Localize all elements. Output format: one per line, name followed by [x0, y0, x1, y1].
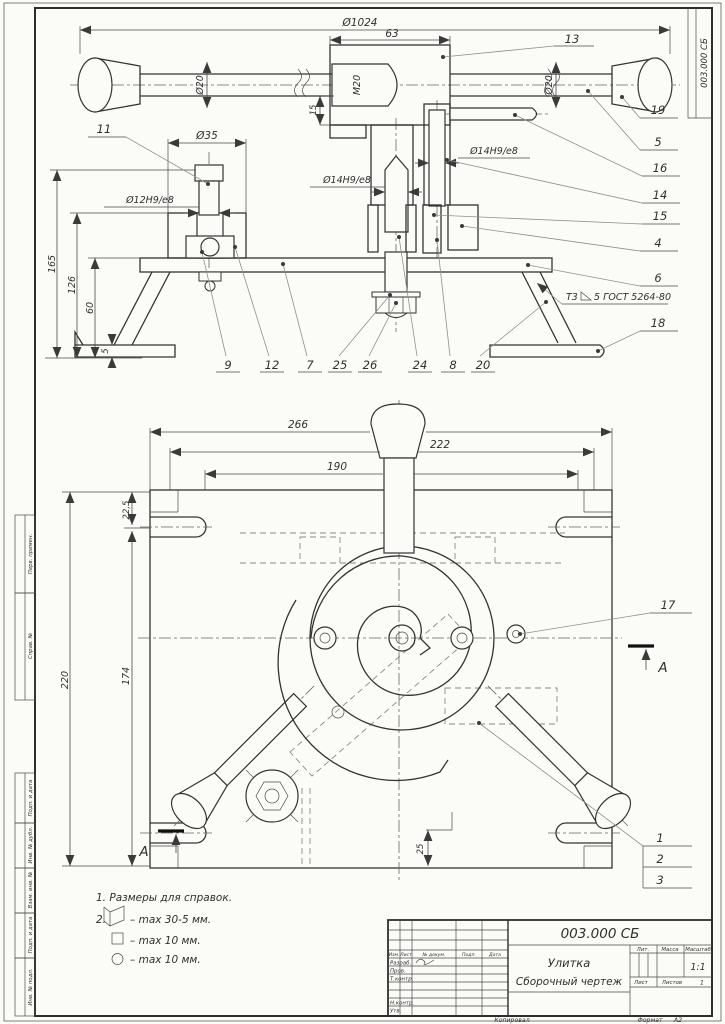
callout-26: 26 [363, 358, 378, 372]
tb-format-value: А2 [673, 1017, 682, 1024]
dim-25: 25 [416, 844, 426, 855]
tb-row-razrab: Разраб. [390, 961, 411, 967]
callout-12: 12 [265, 358, 280, 372]
dim-174: 174 [121, 667, 132, 685]
tb-massa-label: Масса [661, 947, 678, 953]
locating-pin [450, 108, 537, 120]
dim-222: 222 [430, 439, 450, 451]
stamp-label: Справ. № [28, 632, 34, 659]
callout-11: 11 [97, 122, 112, 136]
section-view: Ø1024 63 М20 Ø20 Ø20 15 Ø35 Ø12Н9/е8 Ø14… [45, 17, 680, 372]
tb-header-list: Лист [399, 952, 412, 958]
dim-pin-fit-left: Ø14Н9/е8 [322, 175, 371, 186]
plan-dimensions: 266 222 190 220 22,5 174 25 [60, 419, 612, 866]
weld-spec: 5 ГОСТ 5264-80 [594, 292, 671, 303]
stamp-box: Взам. инв. № [15, 868, 35, 913]
plan-view: 266 222 190 220 22,5 174 25 17 1 2 3 А А [60, 400, 692, 888]
dim-height-126: 126 [67, 276, 78, 294]
margin-stamps: Перв. примен. Справ. № Подп. и дата Инв.… [15, 515, 35, 1016]
callout-2: 2 [656, 852, 663, 866]
circle-symbol-icon [112, 954, 123, 965]
center-bracket [368, 104, 537, 253]
technical-notes: 1. Размеры для справок. 2. – max 30-5 мм… [96, 892, 232, 966]
tb-row-nkontr: Н.контр. [390, 1001, 414, 1007]
callout-13: 13 [565, 32, 580, 46]
stamp-box: Справ. № [15, 593, 35, 700]
note-2-text: – max 30-5 мм. [130, 914, 211, 926]
bushing [423, 205, 441, 253]
square-symbol-icon [112, 933, 123, 944]
weld-prefix: Т3 [566, 292, 578, 303]
note-4-text: – max 10 мм. [130, 954, 201, 966]
callout-18: 18 [651, 316, 666, 330]
callout-4: 4 [654, 236, 661, 250]
callout-9: 9 [224, 358, 231, 372]
callout-15: 15 [653, 209, 668, 223]
tb-row-prov: Пров. [390, 969, 406, 975]
callout-17: 17 [661, 598, 676, 612]
callout-1: 1 [656, 831, 663, 845]
dim-22-5: 22,5 [122, 501, 132, 520]
plan-callouts: 17 1 2 3 [477, 598, 692, 888]
tb-header-doc: № докум. [422, 952, 446, 958]
section-letter-a-top: А [657, 660, 667, 676]
callout-19: 19 [651, 103, 666, 117]
callout-8: 8 [449, 358, 456, 372]
support-legs [75, 272, 604, 357]
tb-format-label: Формат [637, 1017, 662, 1024]
base-plate [140, 258, 552, 272]
dim-boss-dia: Ø35 [195, 130, 218, 142]
left-knob [78, 58, 112, 112]
tb-sheet-label: Лист [633, 980, 649, 986]
tb-header-sign: Подп. [462, 952, 476, 958]
stamp-box: Инв. № подл. [15, 958, 35, 1016]
stamp-box: Инв. № дубл. [15, 823, 35, 868]
plan-knob [371, 404, 425, 553]
note-2-number: 2. [96, 914, 106, 926]
callout-25: 25 [333, 358, 348, 372]
stamp-label: Инв. № подл. [28, 968, 34, 1005]
section-letter-a-bottom: А [138, 844, 148, 860]
tb-title: Улитка [548, 956, 591, 970]
tb-sheets-label: Листов [661, 980, 682, 986]
ball-follower [201, 238, 219, 256]
note-1: 1. Размеры для справок. [96, 892, 232, 904]
tb-header-izm: Изм. [389, 952, 400, 958]
callout-5: 5 [654, 135, 661, 149]
weld-fillet-triangle-icon [581, 292, 591, 300]
callout-16: 16 [653, 161, 668, 175]
dim-height-165: 165 [47, 255, 58, 273]
handle-hub [78, 45, 672, 138]
weld-seam-icon [104, 906, 124, 926]
dim-rod-dia-left: Ø20 [195, 75, 206, 96]
spiral-cam [278, 546, 494, 780]
title-block: 003.000 СБ Улитка Сборочный чертеж Изм. … [388, 920, 712, 1024]
dim-hub-width: 63 [385, 28, 398, 40]
drawing-sheet: 003.000 СБ Перв. примен. Справ. № Подп. … [0, 0, 725, 1024]
signature-mark [416, 959, 434, 964]
stamp-label: Подп. и дата [28, 780, 34, 817]
tb-scale-label: Масштаб [685, 947, 711, 953]
callout-7: 7 [306, 358, 314, 372]
stamp-label: Подп. и дата [28, 917, 34, 954]
follower-roller [246, 770, 298, 822]
base-plate-plan [150, 490, 612, 868]
doc-number-top: 003.000 СБ [700, 38, 710, 88]
dim-190: 190 [327, 461, 347, 473]
section-cut-marks: А А [138, 646, 667, 860]
callout-24: 24 [413, 358, 428, 372]
callout-14: 14 [653, 188, 668, 202]
stamp-box: Подп. и дата [15, 913, 35, 958]
right-handle [473, 671, 643, 841]
dim-rod-dia-right: Ø20 [544, 75, 555, 96]
dim-overall: Ø1024 [342, 17, 378, 29]
stamp-box: Перв. примен. [15, 515, 35, 593]
left-handle [159, 671, 329, 841]
dim-220: 220 [60, 671, 71, 689]
stamp-label: Перв. примен. [28, 534, 34, 574]
doc-number-top-box: 003.000 СБ [688, 8, 712, 118]
tb-sheets-value: 1 [700, 980, 704, 987]
dim-foot-thickness: 5 [101, 348, 111, 353]
tb-header-date: Дата [488, 952, 501, 958]
dim-height-60: 60 [85, 302, 96, 314]
note-3-text: – max 10 мм. [130, 935, 201, 947]
stamp-label: Инв. № дубл. [28, 827, 34, 864]
thread-hole-m20 [332, 64, 397, 106]
dim-266: 266 [288, 419, 308, 431]
tb-doc-number: 003.000 СБ [561, 926, 640, 942]
callout-3: 3 [656, 873, 663, 887]
callout-6: 6 [654, 271, 661, 285]
tb-row-utv: Утв. [390, 1009, 401, 1015]
tb-lit-label: Лит. [636, 947, 649, 953]
dim-hub-step: 15 [309, 105, 319, 116]
stamp-box: Подп. и дата [15, 773, 35, 823]
tb-scale-value: 1:1 [690, 962, 705, 973]
stamp-label: Взам. инв. № [28, 871, 34, 908]
dim-pin-fit-right: Ø14Н9/е8 [469, 146, 518, 157]
dim-stud-fit: Ø12Н9/е8 [125, 195, 174, 206]
tb-copied-label: Копировал [494, 1017, 529, 1024]
callout-20: 20 [476, 358, 491, 372]
tb-row-tkontr: Т.контр. [390, 977, 413, 983]
dim-thread: М20 [352, 75, 363, 95]
drawing-page: 003.000 СБ Перв. примен. Справ. № Подп. … [0, 0, 725, 1024]
tb-subtitle: Сборочный чертеж [516, 976, 623, 988]
